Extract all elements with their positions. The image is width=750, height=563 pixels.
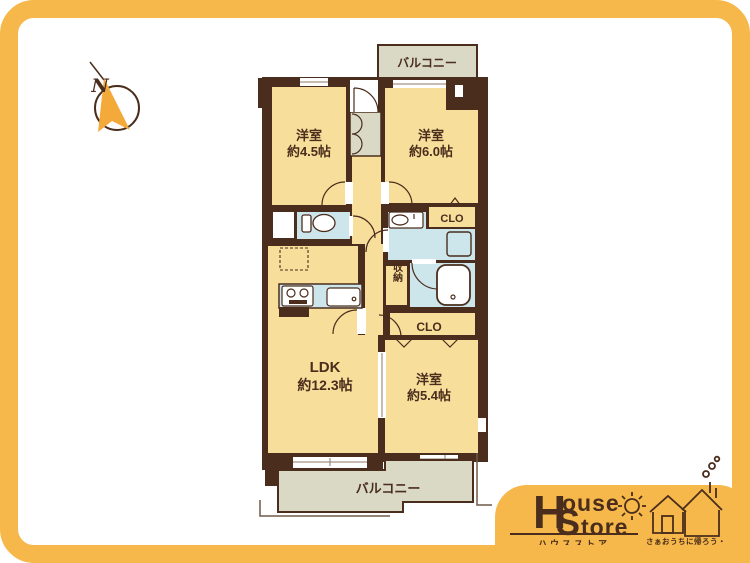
compass: N <box>90 62 139 132</box>
door-gap-room-large <box>381 182 389 204</box>
pillar-top-right <box>446 83 488 110</box>
door-gap-toilet <box>349 216 353 236</box>
door-gap-ldk <box>357 308 366 334</box>
closet-lower-label: CLO <box>416 320 441 334</box>
room-large-name: 洋室 <box>418 128 444 143</box>
room-mid-name: 洋室 <box>416 372 442 387</box>
toilet-icon <box>302 215 335 233</box>
storage-label: 収納 <box>391 262 403 283</box>
floorplan-page: N バルコニー <box>0 0 750 563</box>
washbasin-icon <box>389 212 423 228</box>
logo-katakana: ハウスストア <box>510 537 638 550</box>
balcony-bottom-label: バルコニー <box>356 481 421 496</box>
ldk-name: LDK <box>310 359 341 376</box>
pipe-space <box>273 212 294 238</box>
logo-store-rest: tore <box>581 516 628 539</box>
door-gap-bath <box>412 259 436 264</box>
balcony-top-label: バルコニー <box>397 56 457 70</box>
logo-underline <box>510 533 638 535</box>
ldk-size: 約12.3帖 <box>297 377 352 393</box>
kitchen-base-wall <box>279 307 309 317</box>
logo-store-initial: S <box>556 505 580 541</box>
logo-slogan: さぁおうちに帰ろう・・・ <box>646 536 746 547</box>
kitchen-sink-icon <box>327 288 360 306</box>
compass-n-label: N <box>90 75 109 97</box>
room-mid-size: 約5.4帖 <box>407 388 451 403</box>
hallway-lower-floor <box>365 244 383 335</box>
floorplan-drawing: N バルコニー <box>0 0 750 563</box>
closet-upper-label: CLO <box>440 213 464 225</box>
room-small-size: 約4.5帖 <box>287 144 331 159</box>
logo-graphics <box>618 457 722 536</box>
bathtub-icon <box>437 265 470 305</box>
pillar-top-left <box>258 78 272 108</box>
room-small-name: 洋室 <box>296 128 322 143</box>
hallway-upper-floor <box>352 156 381 244</box>
balcony-top: バルコニー <box>378 45 477 79</box>
wall-vent-right <box>478 418 486 432</box>
wall-vent <box>455 85 463 97</box>
stove-icon <box>282 286 313 306</box>
houses-icon <box>650 457 722 536</box>
door-gap-washroom <box>383 228 389 252</box>
room-large-size: 約6.0帖 <box>409 144 453 159</box>
door-gap-room-small <box>345 182 353 204</box>
ldk-floor <box>268 335 378 453</box>
